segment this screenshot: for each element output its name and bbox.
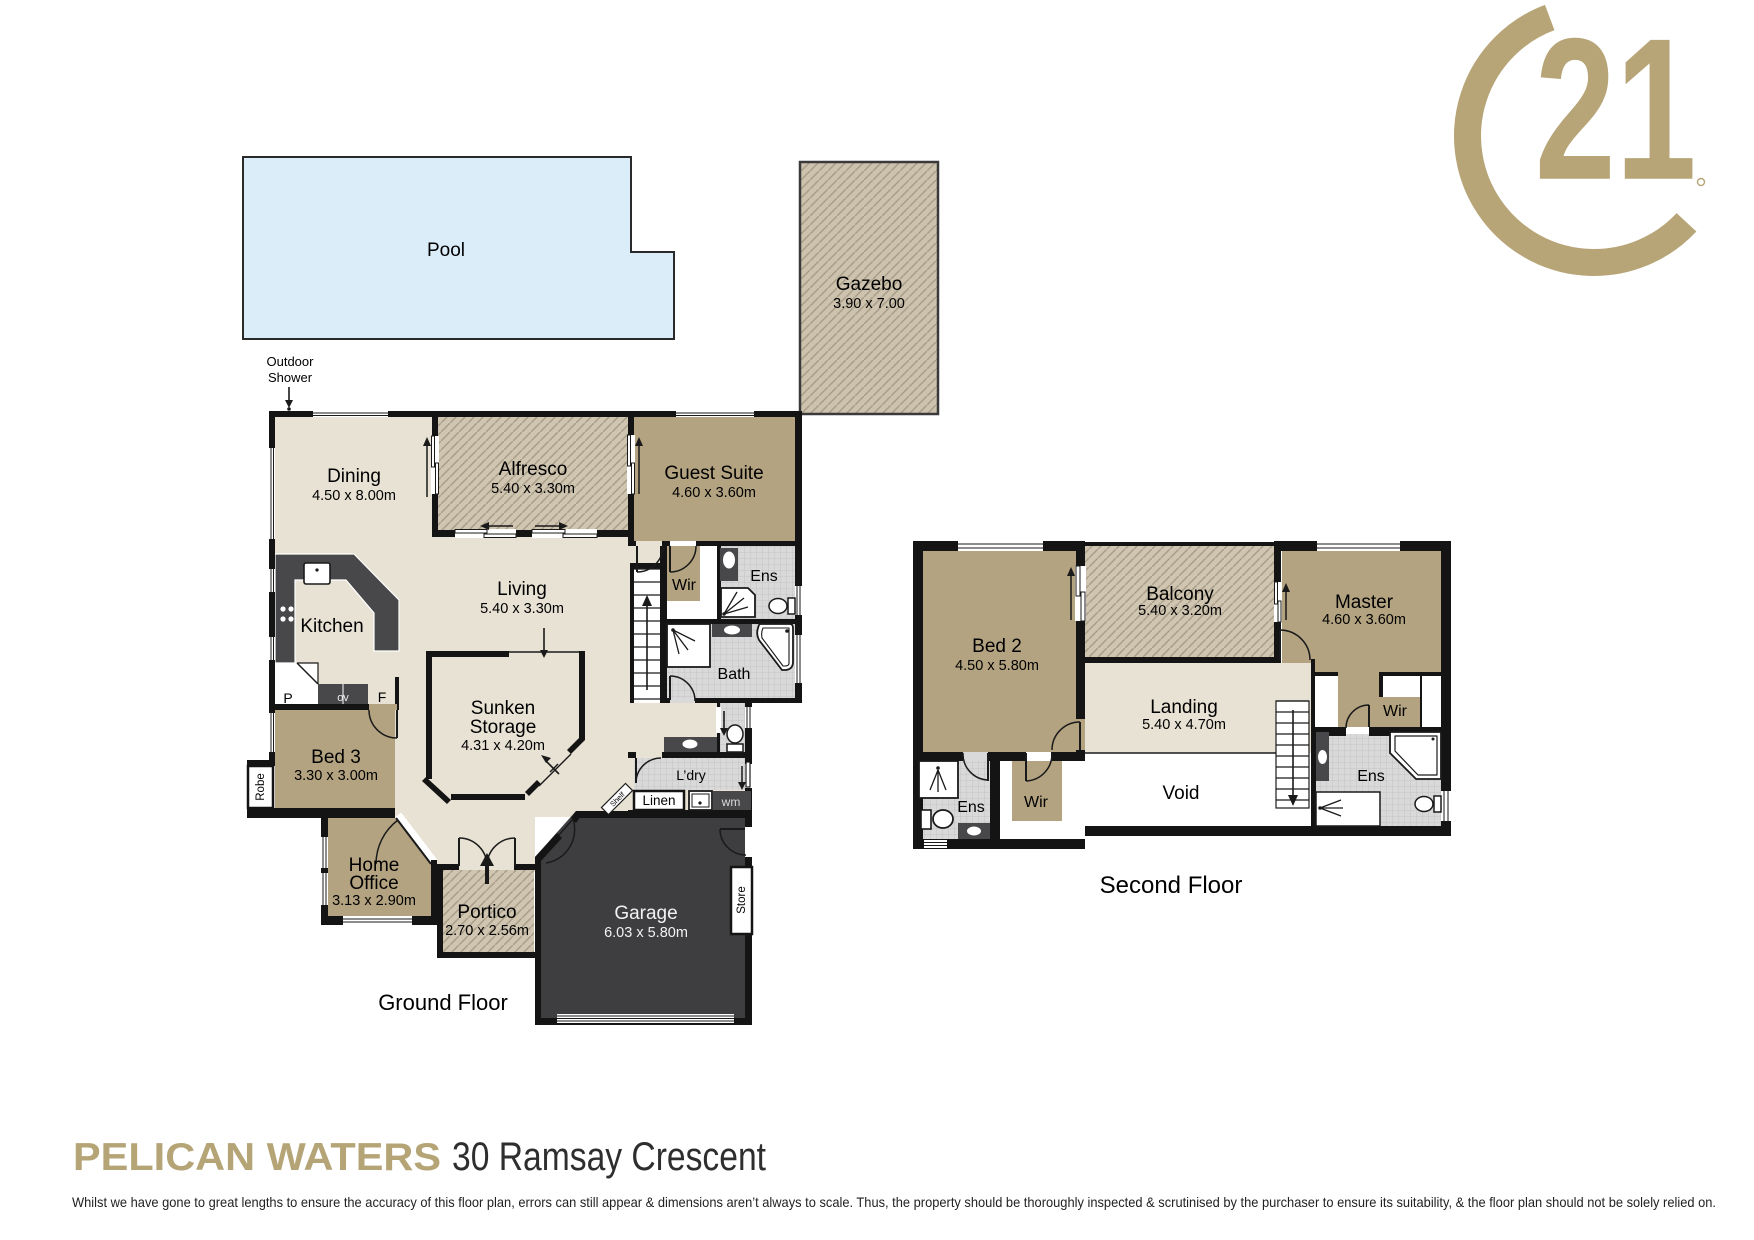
svg-text:Ens: Ens	[1357, 768, 1385, 785]
svg-text:F: F	[378, 689, 387, 705]
svg-text:Second Floor: Second Floor	[1100, 872, 1243, 899]
svg-text:5.40 x 4.70m: 5.40 x 4.70m	[1142, 717, 1226, 733]
svg-text:4.60 x 3.60m: 4.60 x 3.60m	[672, 485, 756, 501]
svg-text:21: 21	[1535, 0, 1697, 222]
svg-text:30 Ramsay Crescent: 30 Ramsay Crescent	[452, 1135, 766, 1179]
svg-text:Office: Office	[349, 873, 398, 894]
svg-text:5.40 x 3.30m: 5.40 x 3.30m	[480, 601, 564, 617]
svg-text:Wir: Wir	[1024, 794, 1049, 811]
svg-text:Alfresco: Alfresco	[499, 459, 568, 480]
svg-text:Wir: Wir	[1383, 703, 1408, 720]
svg-text:Linen: Linen	[642, 793, 675, 808]
svg-text:4.60 x 3.60m: 4.60 x 3.60m	[1322, 612, 1406, 628]
svg-text:Gazebo: Gazebo	[836, 274, 903, 295]
svg-text:4.50 x 8.00m: 4.50 x 8.00m	[312, 488, 396, 504]
svg-text:Store: Store	[736, 886, 748, 914]
svg-text:Bed 3: Bed 3	[311, 747, 361, 768]
svg-text:Portico: Portico	[457, 902, 516, 923]
svg-text:3.90 x 7.00: 3.90 x 7.00	[833, 296, 905, 312]
svg-text:Ens: Ens	[750, 568, 778, 585]
svg-text:2.70 x 2.56m: 2.70 x 2.56m	[445, 923, 529, 939]
svg-text:Whilst we have gone to great l: Whilst we have gone to great lengths to …	[72, 1194, 1716, 1210]
svg-text:L’dry: L’dry	[676, 767, 706, 783]
svg-text:3.30 x 3.00m: 3.30 x 3.00m	[294, 768, 378, 784]
svg-text:3.13 x 2.90m: 3.13 x 2.90m	[332, 893, 416, 909]
svg-text:5.40 x 3.20m: 5.40 x 3.20m	[1138, 603, 1222, 619]
svg-text:5.40 x 3.30m: 5.40 x 3.30m	[491, 481, 575, 497]
svg-text:6.03 x 5.80m: 6.03 x 5.80m	[604, 925, 688, 941]
svg-text:Dining: Dining	[327, 466, 381, 487]
svg-text:PELICAN WATERS: PELICAN WATERS	[73, 1136, 441, 1179]
svg-text:Robe: Robe	[255, 773, 267, 801]
svg-text:Kitchen: Kitchen	[300, 616, 363, 637]
svg-text:Ground Floor: Ground Floor	[378, 990, 508, 1015]
svg-text:Ens: Ens	[957, 799, 985, 816]
svg-text:Wir: Wir	[672, 577, 697, 594]
svg-text:Void: Void	[1163, 783, 1200, 804]
svg-text:4.50 x 5.80m: 4.50 x 5.80m	[955, 658, 1039, 674]
svg-text:Living: Living	[497, 579, 547, 600]
svg-text:Landing: Landing	[1150, 697, 1218, 718]
svg-text:4.31 x 4.20m: 4.31 x 4.20m	[461, 738, 545, 754]
svg-text:Bed 2: Bed 2	[972, 636, 1022, 657]
svg-text:Master: Master	[1335, 592, 1394, 613]
svg-text:wm: wm	[721, 795, 741, 809]
svg-text:ov: ov	[337, 692, 349, 704]
svg-text:P: P	[283, 690, 292, 706]
svg-text:Shower: Shower	[268, 370, 313, 385]
svg-text:Storage: Storage	[470, 717, 537, 738]
svg-text:Sunken: Sunken	[471, 698, 535, 719]
svg-text:Guest Suite: Guest Suite	[664, 463, 763, 484]
svg-text:Pool: Pool	[427, 240, 465, 261]
svg-text:Bath: Bath	[718, 666, 751, 683]
svg-text:Balcony: Balcony	[1146, 584, 1214, 605]
svg-text:Outdoor: Outdoor	[267, 354, 315, 369]
svg-text:Garage: Garage	[614, 903, 677, 924]
